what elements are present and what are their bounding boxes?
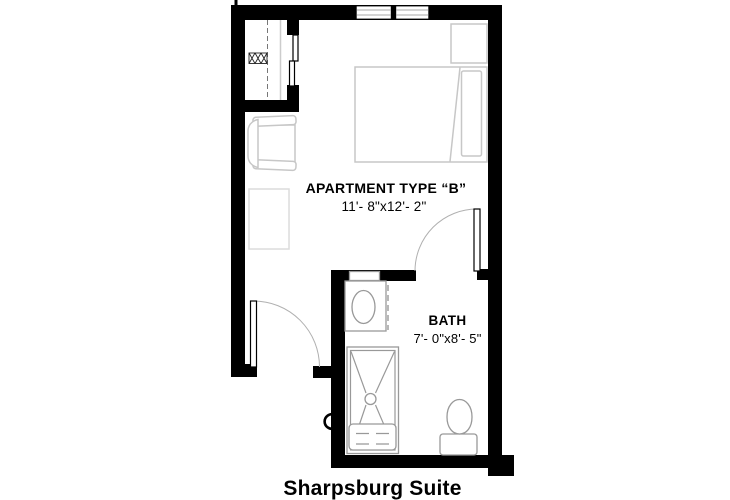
apartment-room-label: APARTMENT TYPE “B” bbox=[301, 180, 471, 196]
entry-door-swing-arc bbox=[254, 301, 320, 367]
floor-plan-page: APARTMENT TYPE “B” 11'- 8"x12'- 2" BATH … bbox=[0, 0, 730, 500]
wall-bottom bbox=[331, 455, 514, 468]
lounge-chair-icon bbox=[248, 116, 296, 171]
sliding-door-panel-icon bbox=[290, 61, 295, 86]
bedroom-furniture bbox=[248, 24, 487, 249]
wall-entry-stub bbox=[313, 366, 333, 378]
wall-bath-left bbox=[331, 270, 345, 467]
chair-arm-top bbox=[253, 116, 296, 127]
wall-closet-bottom bbox=[231, 100, 299, 112]
window-icon bbox=[356, 6, 392, 20]
sink-basin-icon bbox=[352, 291, 375, 324]
shower-bench-icon bbox=[349, 424, 396, 450]
nightstand-icon bbox=[451, 24, 487, 63]
toilet-bowl bbox=[447, 400, 472, 435]
wall-right bbox=[488, 5, 502, 476]
entry-door-icon bbox=[251, 301, 257, 367]
bath-room-label: BATH bbox=[405, 313, 490, 328]
wall-left bbox=[231, 5, 245, 377]
sliding-door-panel-icon bbox=[293, 35, 298, 61]
bath-door-icon bbox=[474, 209, 480, 271]
chair-back bbox=[248, 120, 258, 168]
pillow-icon bbox=[462, 71, 482, 156]
toilet-icon bbox=[440, 400, 477, 456]
wall-closet-jamb-top bbox=[287, 20, 299, 35]
chair-seat bbox=[257, 125, 295, 162]
shower-drain-icon bbox=[365, 394, 376, 405]
wall-closet-jamb-bottom bbox=[287, 85, 299, 100]
plan-title: Sharpsburg Suite bbox=[240, 477, 505, 500]
side-table-icon bbox=[249, 189, 289, 249]
bath-fixtures bbox=[325, 272, 477, 456]
mirror-cabinet-icon bbox=[350, 272, 380, 281]
bath-room-dimensions: 7'- 0"x8'- 5" bbox=[400, 331, 495, 346]
wall-top-left bbox=[231, 5, 356, 20]
shower-icon bbox=[347, 347, 399, 454]
chair-arm-bottom bbox=[253, 160, 296, 171]
wall-bottom-right-corner bbox=[493, 460, 514, 476]
apartment-room-dimensions: 11'- 8"x12'- 2" bbox=[299, 199, 469, 214]
window-icon bbox=[396, 6, 430, 20]
toilet-tank bbox=[440, 434, 477, 455]
bath-door-swing-arc bbox=[415, 209, 477, 271]
floor-plan-drawing bbox=[0, 0, 730, 500]
